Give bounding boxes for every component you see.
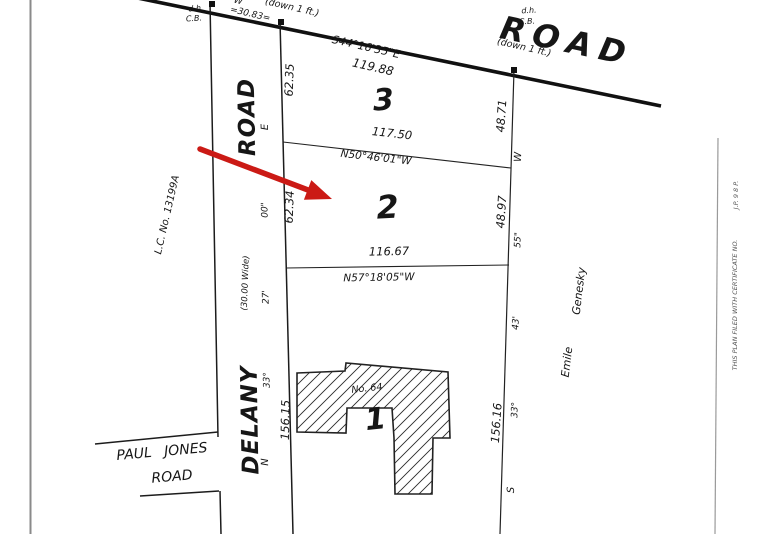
survey-plat-map: d.h. C.B. =30.83= W (down 1 ft.) ROAD S4… (0, 0, 778, 534)
monument-left-dh: d.h. (188, 4, 204, 13)
margin-filing-ref: J.P. 9 8 P. (733, 181, 740, 210)
lot2-south-distance: 116.67 (369, 246, 409, 258)
delany-road-width-note: (30.00 Wide) (241, 255, 251, 310)
lot1-front-distance: 156.15 (280, 400, 292, 440)
paul-jones-name-line2: ROAD (151, 468, 193, 486)
east-boundary-line (500, 70, 514, 534)
pointer-arrow-head (304, 180, 332, 200)
east-bearing-w: W (514, 152, 524, 162)
delany-bearing-e: E (261, 124, 271, 131)
lot2-number: 2 (376, 190, 401, 223)
lot3-number: 3 (372, 85, 395, 116)
monument-right-dh: d.h. (521, 7, 537, 16)
east-bearing-sec: 55" (514, 232, 524, 248)
lot2-rear-distance: 48.97 (495, 195, 509, 229)
lot2-front-distance: 62.34 (284, 190, 297, 223)
monument-left-cb: C.B. (186, 14, 203, 23)
delany-road-west-line (210, 2, 221, 534)
lot1-rear-distance: 156.16 (490, 403, 504, 444)
delany-bearing-deg: 33° (263, 372, 272, 388)
delany-road-east-line (280, 21, 293, 534)
lot2-south-bearing: N57°18'05"W (343, 272, 414, 284)
survey-monument (511, 67, 517, 73)
east-bearing-min: 43' (512, 316, 521, 330)
delany-bearing-min: 27' (262, 290, 271, 304)
east-bearing-s: S (507, 487, 517, 494)
delany-bearing-sec: 00" (261, 202, 270, 218)
lot3-front-distance: 62.35 (284, 63, 297, 96)
margin-filing-note: THIS PLAN FILED WITH CERTIFICATE NO. (732, 240, 739, 371)
lot2-lot1-division-line (286, 265, 509, 268)
monument-right-cb: C.B. (519, 18, 536, 27)
delany-bearing-n: N (261, 458, 271, 466)
sheet-border-right (715, 138, 718, 534)
paul-jones-south-line (140, 491, 219, 496)
survey-monument (209, 1, 215, 7)
delany-road-name-upper: ROAD (236, 78, 260, 157)
lot1-number: 1 (364, 404, 389, 436)
survey-monument (278, 19, 284, 25)
neighbor-first-name: Emile (560, 346, 575, 378)
pointer-arrow (200, 149, 332, 200)
east-bearing-deg: 33° (511, 402, 521, 418)
lot3-rear-distance: 48.71 (495, 99, 509, 133)
